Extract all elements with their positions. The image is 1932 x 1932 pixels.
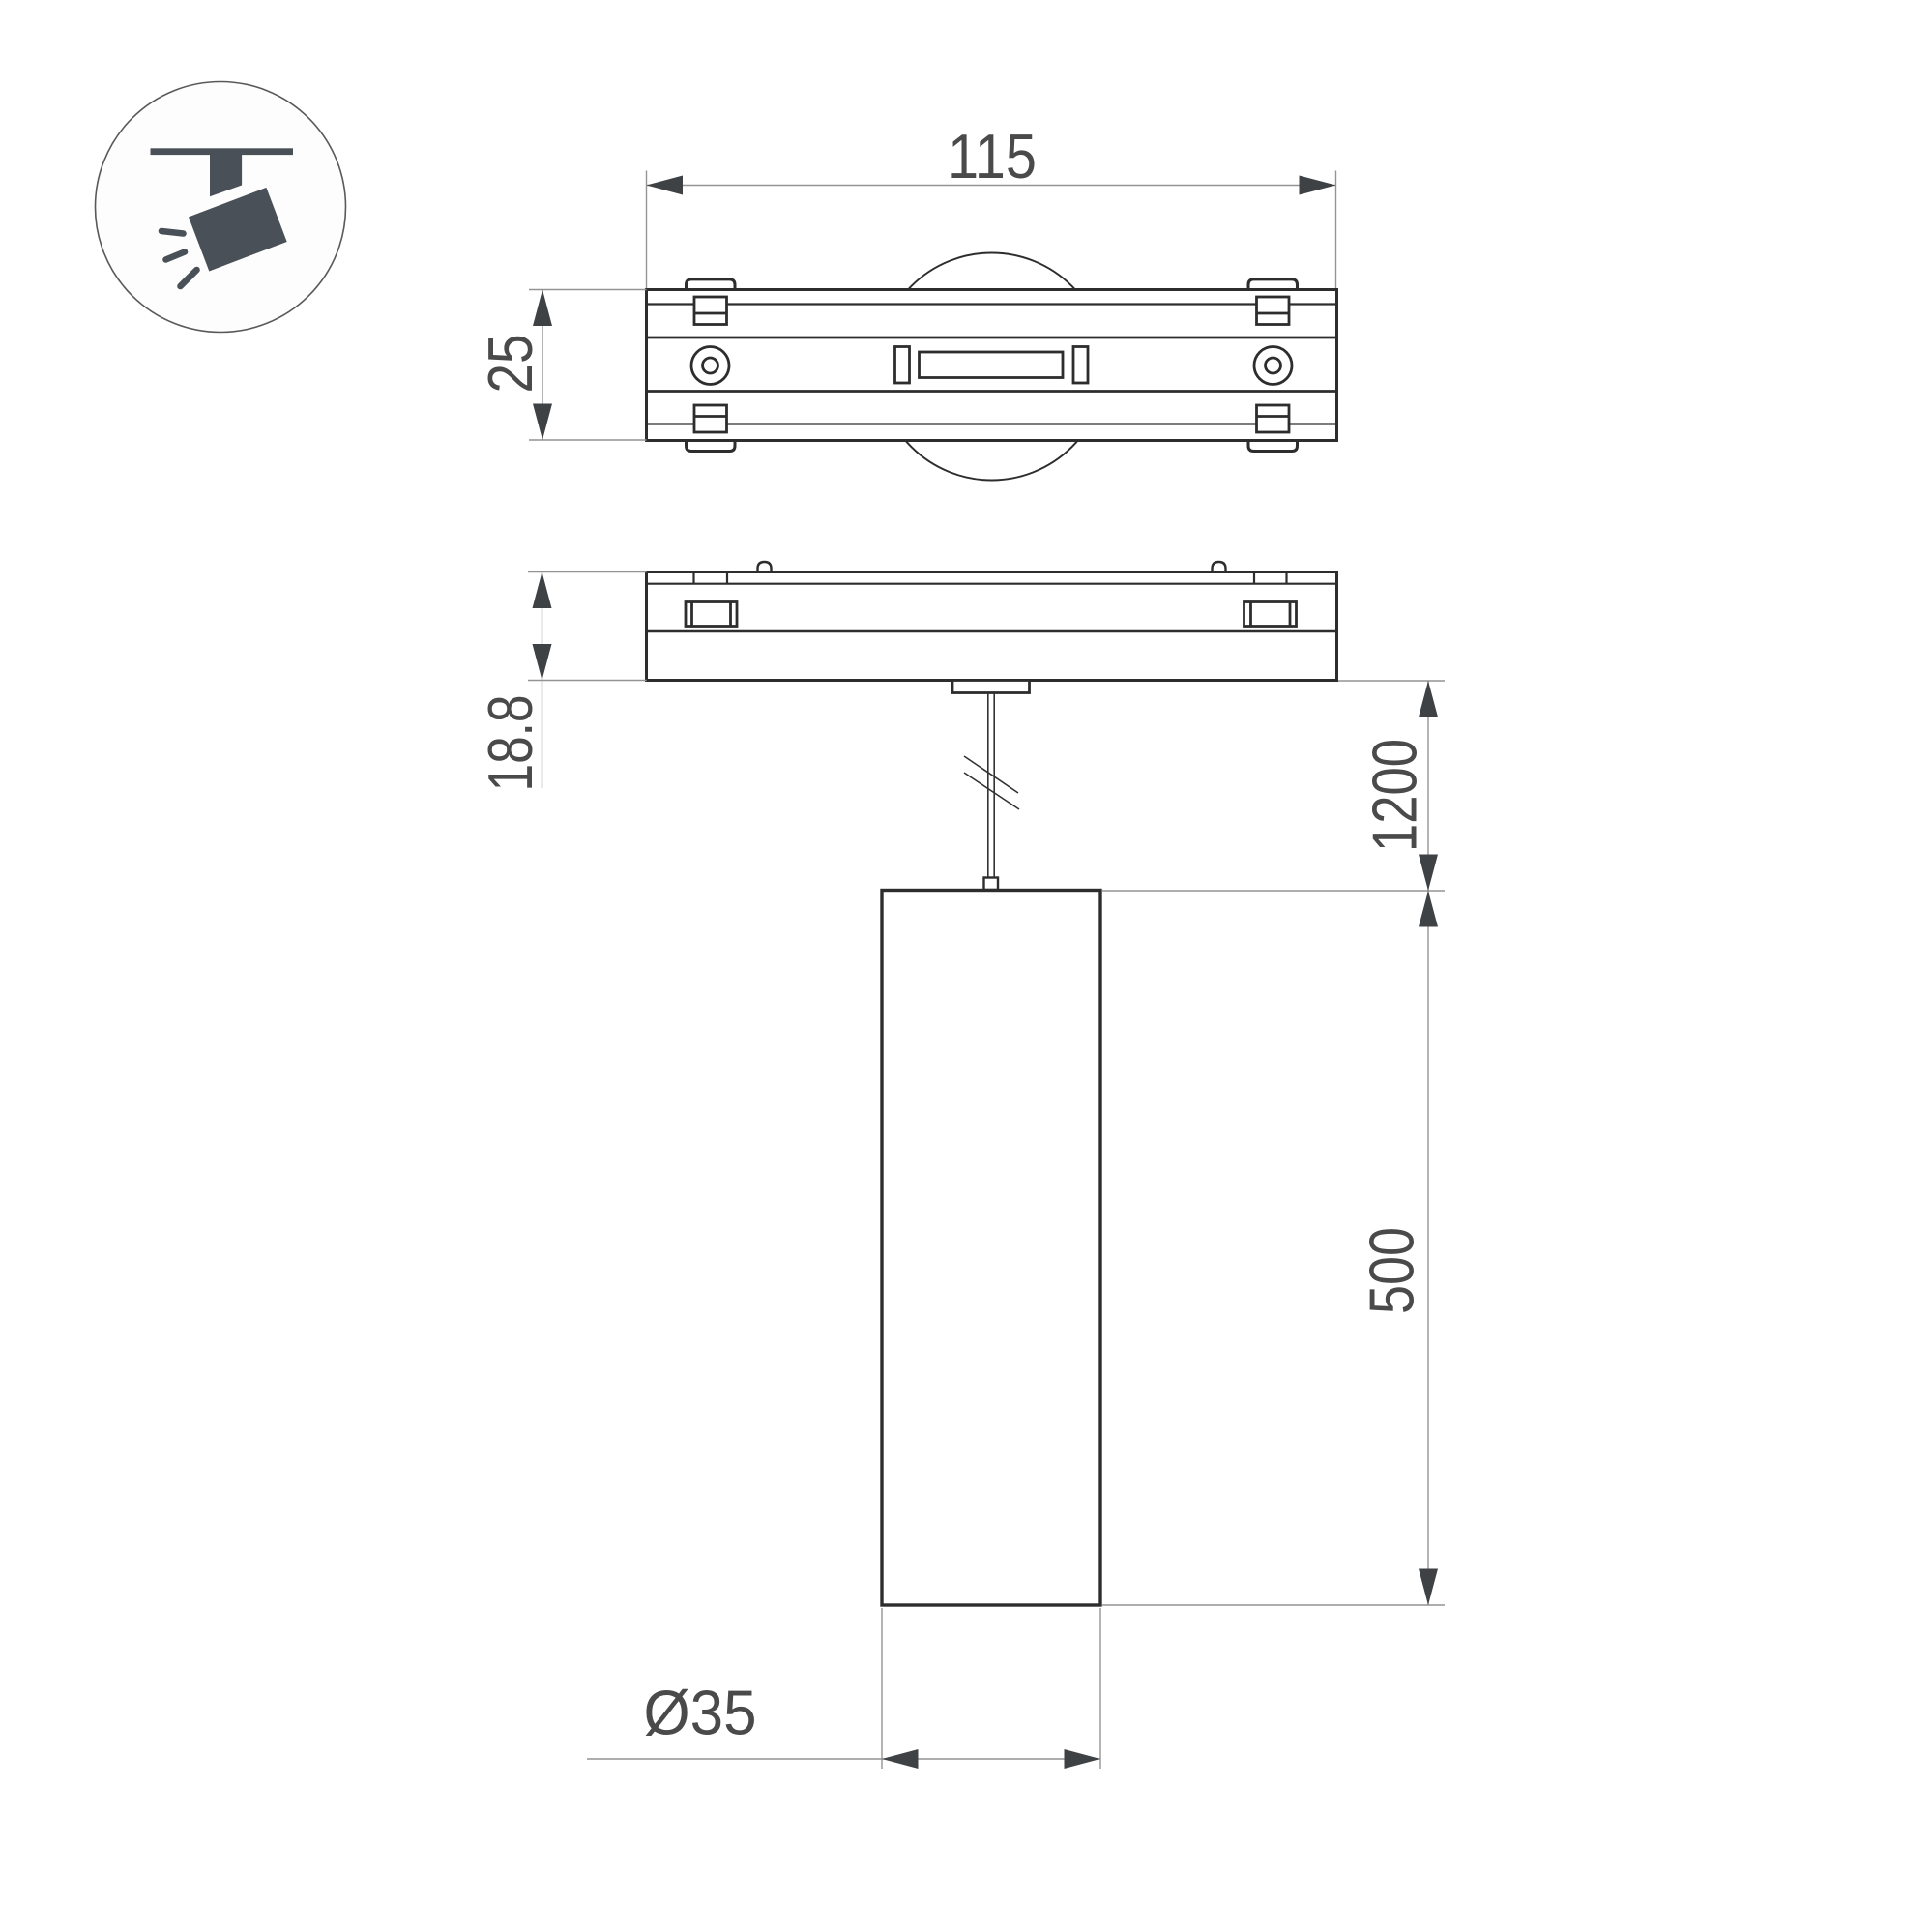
svg-text:Ø35: Ø35 — [644, 1678, 757, 1748]
svg-text:500: 500 — [1357, 1227, 1427, 1314]
svg-text:115: 115 — [948, 121, 1037, 191]
svg-text:25: 25 — [475, 335, 545, 394]
svg-text:1200: 1200 — [1360, 739, 1430, 852]
svg-text:18.8: 18.8 — [475, 695, 545, 792]
